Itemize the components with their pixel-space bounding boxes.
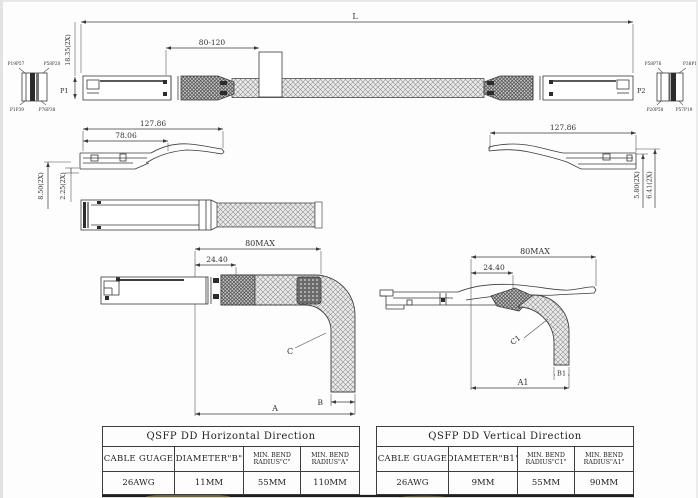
dim-side-total-right-label: 127.86 bbox=[550, 123, 576, 132]
bend-v-b1-label: B1 bbox=[557, 370, 566, 378]
drawing-canvas: L 18.35(2X) 80-120 bbox=[3, 2, 698, 498]
dim-side-v1-label: 8.50(2X) bbox=[38, 172, 45, 199]
value-cable-gauge: 26AWG bbox=[377, 472, 449, 494]
p2-pin-top-left: P58P76 bbox=[645, 62, 662, 67]
table-vertical-header-row: CABLE GUAGE DIAMETER"B1" MIN. BEND RADIU… bbox=[377, 447, 633, 472]
value-min-bend-a: 110MM bbox=[301, 472, 359, 494]
value-diameter-b: 11MM bbox=[175, 472, 244, 494]
p1-pin-top-right: P58P20 bbox=[44, 62, 61, 67]
header-cable-gauge: CABLE GUAGE bbox=[377, 447, 449, 471]
engineering-drawing-page: L 18.35(2X) 80-120 bbox=[0, 0, 698, 498]
bend-h-boot bbox=[297, 277, 321, 304]
bend-h-c-label: C bbox=[287, 347, 293, 356]
table-horizontal-title: QSFP DD Horizontal Direction bbox=[103, 427, 359, 447]
connector-p2-emi-braid bbox=[484, 76, 533, 100]
dim-side-front-label: 78.06 bbox=[115, 131, 137, 140]
dim-side-front: 78.06 bbox=[83, 131, 168, 151]
dim-right-v2-label: 6.41(2X) bbox=[647, 171, 654, 198]
dim-overall-length: L bbox=[81, 12, 633, 73]
dim-side-v2: 2.25(2X) bbox=[60, 168, 79, 202]
dim-bend-v-offset: 24.40 bbox=[471, 263, 513, 292]
dim-bend-v-b1: B1 bbox=[554, 367, 569, 380]
header-min-bend-a1: MIN. BEND RADIUS"A1" bbox=[575, 447, 633, 471]
bend-view-horizontal: 80MAX 24.40 C bbox=[101, 239, 355, 416]
p1-end-face: P19P57 P58P20 P1P39 P76P38 bbox=[8, 62, 61, 113]
bend-h-connector bbox=[101, 277, 219, 304]
header-diameter-b: DIAMETER"B" bbox=[175, 447, 244, 471]
bend-h-a-label: A bbox=[271, 404, 278, 413]
connector-p1-emi-braid bbox=[181, 76, 234, 100]
dim-bend-v-max-label: 80MAX bbox=[520, 247, 550, 256]
dim-bend-h-offset-label: 24.40 bbox=[206, 255, 228, 264]
dim-side-total-right: 127.86 bbox=[490, 123, 636, 152]
dim-bend-h-offset: 24.40 bbox=[195, 255, 236, 277]
p1-pin-bottom-left: P1P39 bbox=[10, 108, 24, 113]
header-diameter-b1: DIAMETER"B1" bbox=[449, 447, 518, 471]
header-cable-gauge: CABLE GUAGE bbox=[103, 447, 175, 471]
dim-side-total: 127.86 bbox=[83, 119, 223, 151]
header-min-bend-c: MIN. BEND RADIUS"C" bbox=[244, 447, 301, 471]
value-cable-gauge: 26AWG bbox=[103, 472, 175, 494]
header-min-bend-c1: MIN. BEND RADIUS"C1" bbox=[518, 447, 575, 471]
p2-label: P2 bbox=[637, 87, 646, 95]
latch-profile-right bbox=[489, 144, 636, 169]
p2-pin-bottom-right: P57P19 bbox=[676, 108, 693, 113]
bend-v-connector bbox=[380, 284, 596, 311]
dim-side-total-label: 127.86 bbox=[140, 119, 166, 128]
p2-pin-bottom-left: P20P58 bbox=[647, 108, 664, 113]
table-vertical-value-row: 26AWG 9MM 55MM 90MM bbox=[377, 472, 633, 494]
value-min-bend-a1: 90MM bbox=[575, 472, 633, 494]
table-horizontal-direction: QSFP DD Horizontal Direction CABLE GUAGE… bbox=[102, 426, 360, 495]
dim-side-v2-label: 2.25(2X) bbox=[60, 172, 67, 199]
dim-overall-length-label: L bbox=[352, 12, 358, 21]
p1-pin-top-left: P19P57 bbox=[8, 62, 25, 67]
table-vertical-direction: QSFP DD Vertical Direction CABLE GUAGE D… bbox=[376, 426, 634, 495]
p2-pin-top-right: P38P1 bbox=[683, 62, 697, 67]
latch-profile-left bbox=[80, 144, 224, 169]
dim-label-position-label: 80-120 bbox=[199, 38, 226, 47]
side-view-right: 127.86 5.80(2X) 6.41(2X) bbox=[489, 123, 660, 208]
bend-h-cable bbox=[221, 275, 355, 392]
connector-p2-body bbox=[484, 76, 633, 100]
p1-label: P1 bbox=[60, 87, 69, 95]
bend-v-cable bbox=[518, 295, 569, 365]
connector-p1-body bbox=[83, 76, 234, 100]
bend-h-b-label: B bbox=[317, 398, 323, 407]
dim-label-position: 80-120 bbox=[166, 38, 259, 75]
bend-v-a1-label: A1 bbox=[517, 378, 529, 387]
dim-bend-h-b: B bbox=[317, 394, 355, 407]
bend-v-c1-label: C1 bbox=[509, 333, 523, 347]
value-diameter-b1: 9MM bbox=[449, 472, 518, 494]
table-horizontal-value-row: 26AWG 11MM 55MM 110MM bbox=[103, 472, 359, 494]
value-min-bend-c1: 55MM bbox=[518, 472, 575, 494]
table-horizontal-header-row: CABLE GUAGE DIAMETER"B" MIN. BEND RADIUS… bbox=[103, 447, 359, 472]
dim-right-v1-label: 5.80(2X) bbox=[634, 171, 641, 198]
side-view-left: 127.86 78.06 8.50(2X) bbox=[38, 119, 322, 230]
header-min-bend-a: MIN. BEND RADIUS"A" bbox=[301, 447, 359, 471]
label-bend-h-c: C bbox=[287, 333, 326, 356]
table-vertical-title: QSFP DD Vertical Direction bbox=[377, 427, 633, 447]
dim-bend-h-max-label: 80MAX bbox=[245, 239, 275, 248]
cable-label-flag bbox=[259, 52, 282, 97]
bend-view-vertical: 80MAX 24.40 C1 bbox=[380, 247, 596, 390]
dim-bend-v-a1: A1 bbox=[471, 378, 569, 388]
dim-connector-height-label: 18.35(2X) bbox=[65, 34, 72, 65]
p1-pin-bottom-right: P76P38 bbox=[39, 108, 56, 113]
top-assembly-view: L 18.35(2X) 80-120 bbox=[8, 12, 698, 113]
top-view-with-cable bbox=[81, 200, 322, 230]
cable-braid-side bbox=[217, 203, 315, 227]
p2-end-face: P58P76 P38P1 P20P58 P57P19 bbox=[645, 62, 698, 113]
label-bend-v-c1: C1 bbox=[509, 319, 548, 347]
value-min-bend-c: 55MM bbox=[244, 472, 301, 494]
dim-bend-v-offset-label: 24.40 bbox=[483, 263, 505, 272]
